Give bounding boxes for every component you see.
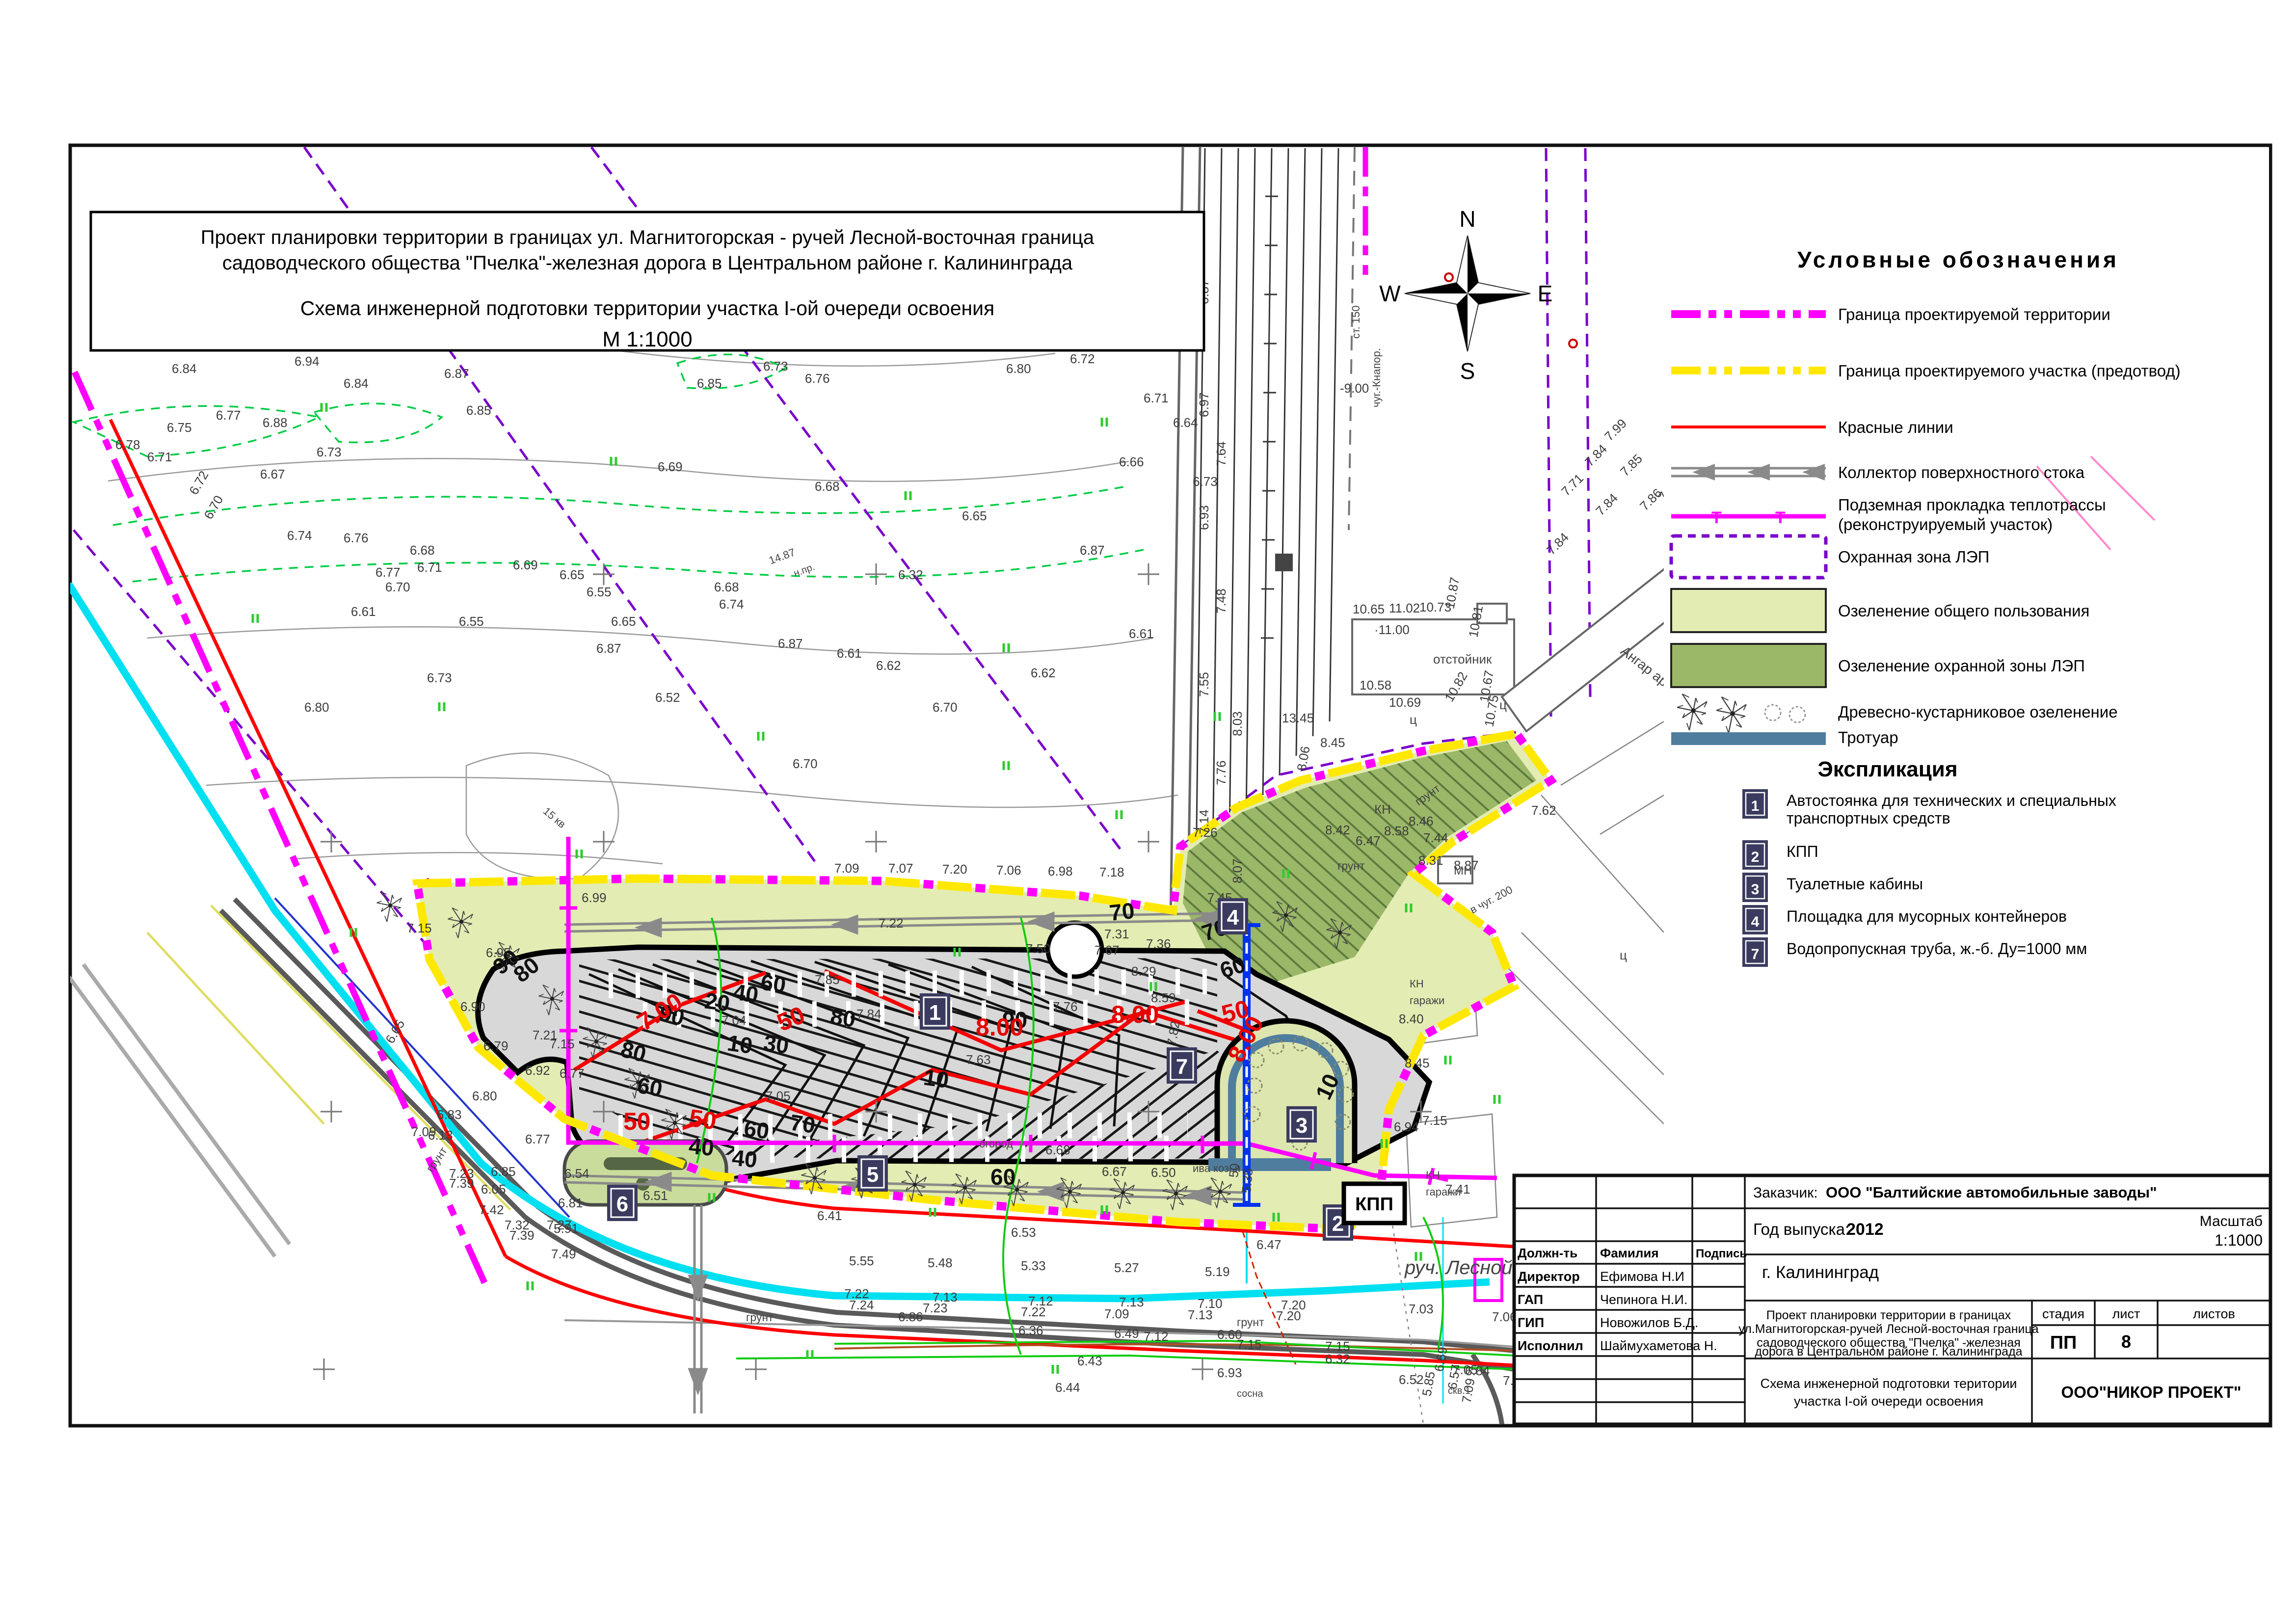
legend-title: Условные обозначения xyxy=(1797,247,2119,272)
spot-elevation: 8.46 xyxy=(1409,814,1434,828)
spot-elevation: 6.93 xyxy=(1197,505,1211,530)
map-label: грунт xyxy=(1337,859,1365,872)
stamp-person-row: ГАПЧепинога Н.И. xyxy=(1518,1292,1687,1307)
map-label: КН xyxy=(1374,802,1391,817)
spot-elevation: 7.67 xyxy=(1095,943,1120,958)
spot-elevation: 6.77 xyxy=(216,408,241,423)
spot-elevation: 7.50 xyxy=(1026,941,1051,956)
spot-elevation: 6.60 xyxy=(1217,1327,1242,1342)
slope-label: 60 xyxy=(990,1164,1015,1190)
spot-elevation: 6.72 xyxy=(1070,351,1095,366)
spot-elevation: 6.41 xyxy=(817,1208,842,1223)
scale-label: Масштаб xyxy=(2200,1213,2263,1229)
spot-elevation: 6.90 xyxy=(460,999,485,1014)
map-label: ст. 150 xyxy=(1350,305,1362,339)
slope-label: 40 xyxy=(688,1133,715,1161)
spot-elevation: 8.45 xyxy=(1405,1056,1430,1070)
slope-label: 10 xyxy=(922,1064,951,1093)
project-line-4: дорога в Центральном районе г. Калинингр… xyxy=(1755,1345,2022,1358)
person-role: ГАП xyxy=(1518,1292,1543,1307)
svg-text:5: 5 xyxy=(867,1163,879,1187)
col-role: Должн-ть xyxy=(1518,1246,1577,1260)
city: г. Калининград xyxy=(1762,1263,1879,1282)
explication-text: Туалетные кабины xyxy=(1787,875,1923,893)
spot-elevation: 7.05 xyxy=(766,1089,791,1103)
svg-text:КПП: КПП xyxy=(1355,1194,1393,1215)
spot-elevation: 7.15 xyxy=(550,1037,575,1051)
spot-elevation: 6.80 xyxy=(304,700,329,715)
stage-label: стадия xyxy=(2042,1306,2084,1321)
spot-elevation: 6.87 xyxy=(778,636,803,651)
spot-elevation: 7.64 xyxy=(1214,441,1228,466)
spot-elevation: 6.71 xyxy=(417,560,442,575)
explication-text: Автостоянка для технических и специальны… xyxy=(1787,792,2116,809)
scheme-line-2: участка I-ой очереди освоения xyxy=(1794,1394,1983,1409)
person-role: ГИП xyxy=(1518,1315,1544,1330)
spot-elevation: 7.42 xyxy=(479,1202,504,1217)
explication-badge-6: 6 xyxy=(607,1185,638,1221)
sheet-value: 8 xyxy=(2121,1331,2131,1352)
spot-elevation: 7.31 xyxy=(1104,927,1129,941)
spot-elevation: 6.76 xyxy=(805,371,830,386)
spot-elevation: 6.52 xyxy=(1399,1372,1424,1387)
spot-elevation: 6.73 xyxy=(317,445,342,459)
spot-elevation: 6.77 xyxy=(375,565,400,580)
spot-elevation: 5.91 xyxy=(554,1221,579,1236)
col-name: Фамилия xyxy=(1600,1246,1659,1260)
explication-text-2: транспортных средств xyxy=(1787,809,1950,827)
explication-title: Экспликация xyxy=(1817,757,1957,781)
person-role: Директор xyxy=(1518,1269,1580,1284)
spot-elevation: 6.80 xyxy=(472,1089,497,1103)
spot-elevation: 6.76 xyxy=(344,531,369,545)
spot-elevation: 11.02 xyxy=(1389,601,1420,615)
company: ООО"НИКОР ПРОЕКТ" xyxy=(2061,1383,2242,1401)
spot-elevation: 7.07 xyxy=(888,861,913,876)
spot-elevation: 7.15 xyxy=(1422,1113,1447,1128)
spot-elevation: 6.85 xyxy=(466,403,491,418)
spot-elevation: 7.49 xyxy=(551,1247,576,1261)
spot-elevation: 6.55 xyxy=(587,585,612,599)
spot-elevation: 6.65 xyxy=(611,614,636,629)
spot-elevation: 6.92 xyxy=(525,1063,550,1078)
slope-label: 10 xyxy=(726,1030,754,1059)
slope-label: 60 xyxy=(743,1115,771,1144)
spot-elevation: 7.20 xyxy=(942,862,967,877)
title-line-1: Проект планировки территории в границах … xyxy=(201,227,1095,248)
spot-elevation: 6.68 xyxy=(815,479,840,494)
explication-num: 7 xyxy=(1751,946,1760,962)
map-label: ц xyxy=(1410,712,1417,727)
spot-elevation: 6.99 xyxy=(582,890,607,905)
spot-elevation: 6.51 xyxy=(643,1188,668,1203)
spot-elevation: 6.97 xyxy=(1197,392,1211,417)
customer-value: ООО "Балтийские автомобильные заводы" xyxy=(1826,1184,2157,1201)
spot-elevation: 7.12 xyxy=(1144,1329,1169,1344)
stamp-person-row: ИсполнилШаймухаметова Н. xyxy=(1518,1338,1717,1353)
spot-elevation: 6.67 xyxy=(1102,1164,1127,1179)
kpp-box: КПП xyxy=(1344,1184,1405,1223)
sheet-label: лист xyxy=(2112,1306,2140,1321)
spot-elevation: 5.48 xyxy=(928,1255,953,1270)
spot-elevation: 6.77 xyxy=(525,1132,550,1146)
spot-elevation: 5.55 xyxy=(849,1253,874,1268)
spot-elevation: 8.07 xyxy=(1230,858,1245,883)
spot-elevation: 6.80 xyxy=(1006,361,1031,376)
spot-elevation: 7.36 xyxy=(1146,936,1171,951)
spot-elevation: 10.58 xyxy=(1360,678,1391,692)
spot-elevation: 6.75 xyxy=(167,420,192,435)
spot-elevation: 5.33 xyxy=(1021,1258,1046,1273)
slope-label: 70 xyxy=(789,1109,817,1138)
spot-elevation: 7.39 xyxy=(449,1176,474,1191)
site-notch xyxy=(1048,923,1102,977)
explication-badge-3: 3 xyxy=(1286,1106,1317,1143)
spot-elevation: 8.29 xyxy=(1131,964,1156,979)
spot-elevation: 6.36 xyxy=(1018,1323,1043,1338)
spot-elevation: 6.68 xyxy=(714,580,739,594)
title-line-2: садоводческого общества "Пчелка"-железна… xyxy=(222,252,1073,274)
spot-elevation: 6.70 xyxy=(385,580,410,594)
map-label: гаражи xyxy=(1410,994,1444,1007)
spot-elevation: -9.00 xyxy=(1340,381,1369,396)
legend-label: Охранная зона ЛЭП xyxy=(1838,548,1989,566)
map-label: скв.1 xyxy=(1448,1385,1470,1396)
spot-elevation: 7.26 xyxy=(1193,825,1218,840)
spot-elevation: 7.23 xyxy=(923,1301,948,1315)
spot-elevation: 7.44 xyxy=(1423,830,1448,845)
legend-label: Коллектор поверхностного стока xyxy=(1838,463,2085,481)
stage-value: ПП xyxy=(2050,1332,2077,1353)
title-box: Проект планировки территории в границах … xyxy=(91,212,1204,351)
svg-text:1: 1 xyxy=(929,1001,941,1025)
spot-elevation: 6.05 xyxy=(481,1182,506,1197)
slope-label: 40 xyxy=(731,1145,758,1172)
explication-num: 3 xyxy=(1751,881,1760,898)
spot-elevation: 7.76 xyxy=(1053,999,1078,1014)
slope-label: 60 xyxy=(635,1072,664,1102)
spot-elevation: 6.79 xyxy=(483,1038,508,1053)
spot-elevation: 7.22 xyxy=(879,916,904,931)
spot-elevation: 6.70 xyxy=(933,700,958,715)
spot-elevation: 6.85 xyxy=(491,1164,516,1179)
title-scale: М 1:1000 xyxy=(602,327,692,351)
spot-elevation: 7.55 xyxy=(1197,672,1211,697)
spot-elevation: 5.35 xyxy=(1239,1168,1255,1194)
spot-elevation: 6.86 xyxy=(898,1309,923,1324)
spot-elevation: 6.85 xyxy=(697,376,722,391)
legend-label: Тротуар xyxy=(1838,728,1898,746)
slope-label: 40 xyxy=(732,979,760,1008)
spot-elevation: 6.61 xyxy=(837,646,862,661)
site-plan-map: 6.846.946.876.856.756.776.886.786.716.73… xyxy=(0,0,2296,1624)
spot-elevation: 6.73 xyxy=(763,359,788,373)
svg-text:4: 4 xyxy=(1227,905,1239,930)
spot-elevation: 6.84 xyxy=(1465,1363,1490,1378)
map-label: ц xyxy=(1499,697,1507,712)
legend-label-2: (реконструируемый участок) xyxy=(1838,515,2053,533)
spot-elevation: 6.87 xyxy=(1080,543,1105,558)
spot-elevation: 6.47 xyxy=(1356,833,1381,848)
title-line-3: Схема инженерной подготовки территории у… xyxy=(300,297,995,319)
person-role: Исполнил xyxy=(1518,1338,1583,1353)
legend-label: Граница проектируемого участка (предотво… xyxy=(1838,362,2181,380)
map-label: ц xyxy=(1620,948,1627,962)
project-line-2: ул.Магнитогорская-ручей Лесной-восточная… xyxy=(1738,1322,2039,1336)
spot-elevation: 6.64 xyxy=(1173,415,1198,430)
person-name: Шаймухаметова Н. xyxy=(1600,1338,1717,1353)
legend-label: Подземная прокладка теплотрассы xyxy=(1838,496,2106,514)
spot-elevation: 6.73 xyxy=(427,670,452,685)
spot-elevation: 6.81 xyxy=(558,1196,583,1210)
spot-elevation: 6.94 xyxy=(1394,1119,1419,1134)
heat-t-mark: Т xyxy=(1711,508,1722,527)
spot-elevation: 6.94 xyxy=(294,354,320,369)
map-label: отстойник xyxy=(1433,652,1492,666)
year-label: Год выпуска: xyxy=(1753,1220,1849,1238)
spot-elevation: 6.87 xyxy=(444,366,469,381)
spot-elevation: 7.22 xyxy=(1021,1305,1046,1319)
spot-elevation: 6.32 xyxy=(898,567,923,582)
design-elevation-label: 50 xyxy=(623,1108,651,1135)
legend-label: Древесно-кустарниковое озеленение xyxy=(1838,703,2118,721)
spot-elevation: 6.65 xyxy=(560,567,585,582)
spot-elevation: 6.62 xyxy=(1031,666,1056,680)
slope-label: 80 xyxy=(829,1003,857,1032)
spot-elevation: 6.84 xyxy=(172,361,197,376)
spot-elevation: 6.93 xyxy=(1217,1365,1242,1380)
spot-elevation: 6.71 xyxy=(147,450,172,464)
spot-elevation: 6.67 xyxy=(260,467,285,481)
spot-elevation: 8.03 xyxy=(1230,711,1245,736)
design-elevation-label: 50 xyxy=(687,1104,718,1135)
spot-elevation: 7.18 xyxy=(1099,865,1124,879)
spot-elevation: 7.03 xyxy=(1409,1302,1434,1316)
spot-elevation: 6.61 xyxy=(1129,626,1154,641)
explication-text: Водопропускная труба, ж.-б. Ду=1000 мм xyxy=(1787,940,2087,958)
spot-elevation: 6.68 xyxy=(1045,1143,1070,1157)
spot-elevation: 6.32 xyxy=(1325,1352,1350,1366)
map-label: ива козья xyxy=(1193,1162,1240,1174)
spot-elevation: 7.62 xyxy=(1531,803,1556,818)
drawing-sheet: { "title_box": { "line1": "Проект планир… xyxy=(0,0,2296,1624)
legend-label: Озеленение общего пользования xyxy=(1838,602,2089,620)
spot-elevation: 6.50 xyxy=(1151,1165,1176,1180)
spot-elevation: 8.31 xyxy=(1418,853,1443,868)
spot-elevation: 10.69 xyxy=(1389,695,1421,710)
spot-elevation: 6.70 xyxy=(793,756,818,771)
customer-label: Заказчик: xyxy=(1753,1185,1818,1201)
spot-elevation: 6.71 xyxy=(1144,391,1169,405)
utility-block xyxy=(1275,554,1293,571)
spot-elevation: 6.66 xyxy=(1119,454,1144,469)
slope-label: 60 xyxy=(759,969,788,998)
explication-text: Площадка для мусорных контейнеров xyxy=(1787,907,2067,925)
spot-elevation: 6.65 xyxy=(962,508,987,523)
spot-elevation: 7.06 xyxy=(996,863,1021,878)
spot-elevation: 7.24 xyxy=(849,1298,874,1312)
spot-elevation: 7.15 xyxy=(407,921,432,935)
explication-badge-7: 7 xyxy=(1167,1047,1197,1084)
compass-e: E xyxy=(1538,281,1553,306)
spot-elevation: 6.73 xyxy=(1193,474,1218,489)
map-label: МН xyxy=(1454,864,1472,878)
spot-elevation: 5.19 xyxy=(1205,1264,1230,1279)
stamp-person-row: ДиректорЕфимова Н.И xyxy=(1518,1269,1684,1284)
heat-t-mark: Т xyxy=(1775,508,1786,527)
spot-elevation: 13.45 xyxy=(1282,711,1314,725)
spot-elevation: 6.69 xyxy=(658,459,683,474)
spot-elevation: 6.49 xyxy=(1114,1326,1139,1341)
map-label: сосна xyxy=(1237,1388,1263,1399)
map-label: КН xyxy=(1410,978,1424,990)
spot-elevation: 6.55 xyxy=(459,614,484,629)
compass-n: N xyxy=(1459,206,1475,232)
spot-elevation: 7.09 xyxy=(834,861,859,876)
map-label: гаражи xyxy=(1426,1186,1461,1198)
spot-elevation: 7.09 xyxy=(411,1124,436,1139)
spot-elevation: 7.20 xyxy=(1276,1308,1301,1323)
spot-elevation: 6.44 xyxy=(1055,1380,1080,1395)
map-label: грунт xyxy=(746,1311,774,1324)
compass-w: W xyxy=(1379,281,1401,306)
person-name: Чепинога Н.И. xyxy=(1600,1292,1687,1307)
year-value: 2012 xyxy=(1846,1220,1884,1239)
design-elevation-label: 8.00 xyxy=(976,1013,1023,1041)
spot-elevation: 6.68 xyxy=(410,543,435,558)
explication-badge-1: 1 xyxy=(920,993,950,1030)
spot-elevation: 7.48 xyxy=(1214,588,1228,613)
spot-elevation: 8.42 xyxy=(1325,823,1350,837)
scheme-line-1: Схема инженерной подготовки територии xyxy=(1760,1376,2017,1391)
spot-elevation: 7.09 xyxy=(1104,1306,1129,1321)
spot-elevation: 6.83 xyxy=(437,1107,462,1122)
spot-elevation: 7.76 xyxy=(1214,760,1228,785)
design-elevation-label: 8.00 xyxy=(1111,1001,1159,1028)
spot-elevation: 5.27 xyxy=(1114,1260,1139,1275)
project-line-1: Проект планировки территории в границах xyxy=(1766,1308,2011,1322)
map-label: огород xyxy=(979,1138,1013,1150)
spot-elevation: 7.13 xyxy=(1188,1307,1213,1322)
spot-elevation: 7.39 xyxy=(509,1228,534,1243)
explication-num: 4 xyxy=(1751,914,1760,930)
person-name: Ефимова Н.И xyxy=(1600,1269,1684,1284)
spot-elevation: ·11.00 xyxy=(1374,622,1410,637)
spot-elevation: 6.47 xyxy=(1256,1237,1281,1252)
svg-text:6: 6 xyxy=(616,1192,628,1216)
map-label: чуг.-Кнапор. xyxy=(1370,348,1383,407)
spot-elevation: 6.53 xyxy=(1011,1225,1036,1240)
compass-s: S xyxy=(1460,358,1475,384)
map-label: КН xyxy=(1426,1169,1440,1181)
spot-elevation: 10.65 xyxy=(1353,602,1385,616)
spot-elevation: 6.62 xyxy=(876,658,901,673)
person-name: Новожилов Б.Д. xyxy=(1600,1315,1698,1330)
map-label: руч. Лесной xyxy=(1404,1257,1513,1278)
svg-text:3: 3 xyxy=(1296,1114,1308,1138)
spot-elevation: 6.87 xyxy=(596,641,621,656)
spot-elevation: 6.84 xyxy=(344,376,369,391)
col-sign: Подпись xyxy=(1696,1247,1747,1260)
spot-elevation: 6.77 xyxy=(560,1066,585,1081)
explication-num: 1 xyxy=(1751,798,1760,814)
spot-elevation: 8.45 xyxy=(1320,735,1345,750)
sheets-label: листов xyxy=(2193,1306,2235,1321)
spot-elevation: 6.52 xyxy=(655,690,680,705)
svg-text:7: 7 xyxy=(1176,1055,1188,1079)
spot-elevation: 8.58 xyxy=(1384,824,1409,838)
legend-label: Красные линии xyxy=(1838,418,1953,436)
spot-elevation: 7.85 xyxy=(815,972,840,987)
spot-elevation: 6.98 xyxy=(1048,864,1073,879)
spot-elevation: 7.84 xyxy=(856,1007,881,1021)
spot-elevation: 6.78 xyxy=(115,437,140,452)
spot-elevation: 6.43 xyxy=(1077,1354,1102,1368)
slope-label: 20 xyxy=(703,987,732,1016)
spot-elevation: 6.88 xyxy=(263,415,288,430)
scale-value: 1:1000 xyxy=(2215,1231,2263,1249)
spot-elevation: 6.74 xyxy=(287,528,312,543)
spot-elevation: 6.54 xyxy=(564,1166,589,1181)
map-label: грунт xyxy=(1237,1316,1264,1329)
explication-num: 2 xyxy=(1751,849,1760,865)
legend-label: Озеленение охранной зоны ЛЭП xyxy=(1838,657,2085,675)
spot-elevation: 6.61 xyxy=(351,604,376,619)
explication-badge-4: 4 xyxy=(1218,898,1248,934)
spot-elevation: 6.69 xyxy=(513,558,538,572)
slope-label: 70 xyxy=(1108,898,1136,926)
spot-elevation: 6.74 xyxy=(719,597,744,612)
spot-elevation: 7.63 xyxy=(966,1052,991,1067)
spot-elevation: 8.40 xyxy=(1399,1012,1424,1026)
legend-label: Граница проектируемой территории xyxy=(1838,305,2110,323)
explication-badge-5: 5 xyxy=(857,1155,888,1192)
explication-text: КПП xyxy=(1787,843,1818,860)
